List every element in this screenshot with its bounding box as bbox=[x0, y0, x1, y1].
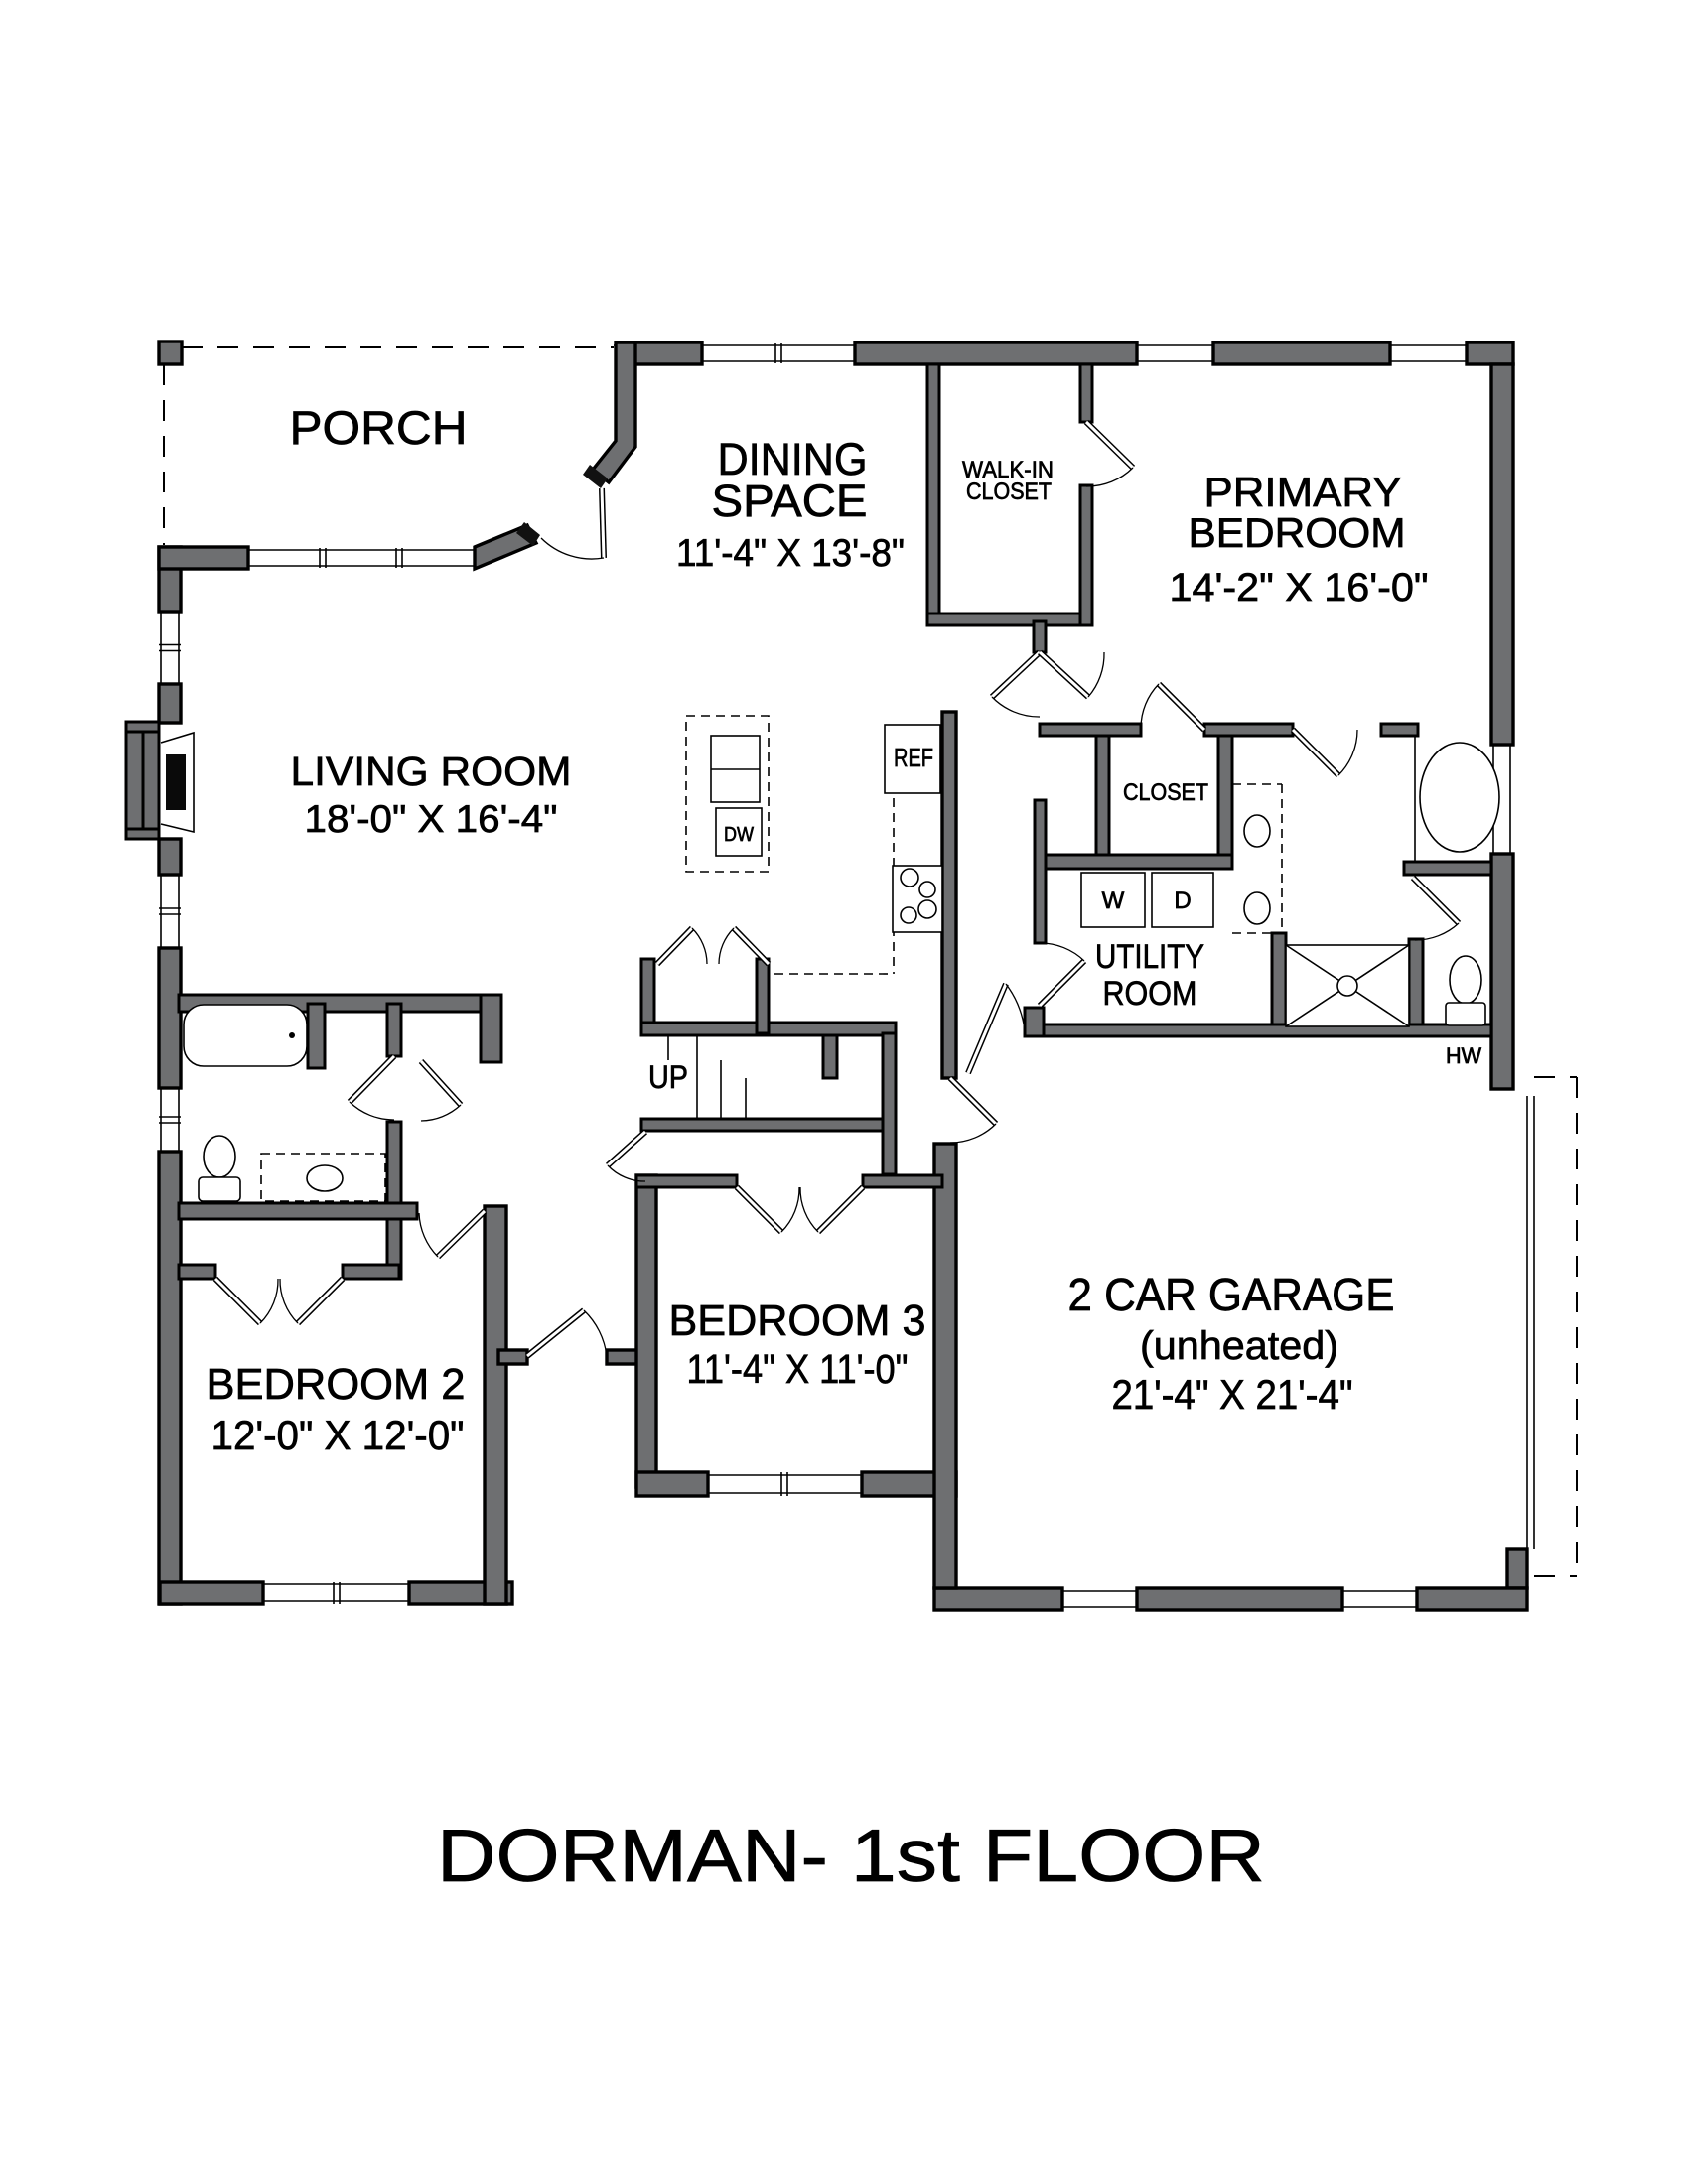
svg-text:UP: UP bbox=[648, 1059, 688, 1095]
svg-text:W: W bbox=[1102, 887, 1125, 914]
svg-text:LIVING ROOM: LIVING ROOM bbox=[291, 749, 572, 794]
svg-text:DORMAN- 1st FLOOR: DORMAN- 1st FLOOR bbox=[437, 1814, 1265, 1897]
svg-text:2 CAR GARAGE: 2 CAR GARAGE bbox=[1068, 1269, 1395, 1320]
svg-text:11'-4" X 11'-0": 11'-4" X 11'-0" bbox=[687, 1346, 909, 1392]
svg-text:(unheated): (unheated) bbox=[1140, 1324, 1338, 1368]
svg-text:12'-0" X 12'-0": 12'-0" X 12'-0" bbox=[211, 1412, 465, 1458]
svg-text:BEDROOM 2: BEDROOM 2 bbox=[207, 1360, 466, 1409]
svg-text:CLOSET: CLOSET bbox=[966, 478, 1052, 505]
svg-text:HW: HW bbox=[1446, 1043, 1481, 1068]
svg-text:18'-0" X 16'-4": 18'-0" X 16'-4" bbox=[305, 798, 558, 841]
svg-text:14'-2" X 16'-0": 14'-2" X 16'-0" bbox=[1170, 566, 1429, 610]
svg-text:ROOM: ROOM bbox=[1103, 975, 1197, 1013]
svg-text:21'-4" X 21'-4": 21'-4" X 21'-4" bbox=[1112, 1371, 1353, 1418]
svg-text:DW: DW bbox=[724, 824, 754, 846]
svg-text:PRIMARY: PRIMARY bbox=[1204, 469, 1402, 515]
svg-text:UTILITY: UTILITY bbox=[1095, 938, 1204, 976]
svg-text:PORCH: PORCH bbox=[290, 401, 468, 454]
svg-text:11'-4" X 13'-8": 11'-4" X 13'-8" bbox=[676, 532, 905, 575]
svg-text:D: D bbox=[1174, 887, 1191, 914]
svg-text:SPACE: SPACE bbox=[712, 476, 868, 526]
svg-text:REF: REF bbox=[894, 743, 933, 772]
svg-text:BEDROOM 3: BEDROOM 3 bbox=[669, 1297, 926, 1345]
svg-text:BEDROOM: BEDROOM bbox=[1189, 509, 1406, 556]
svg-text:CLOSET: CLOSET bbox=[1123, 779, 1208, 806]
